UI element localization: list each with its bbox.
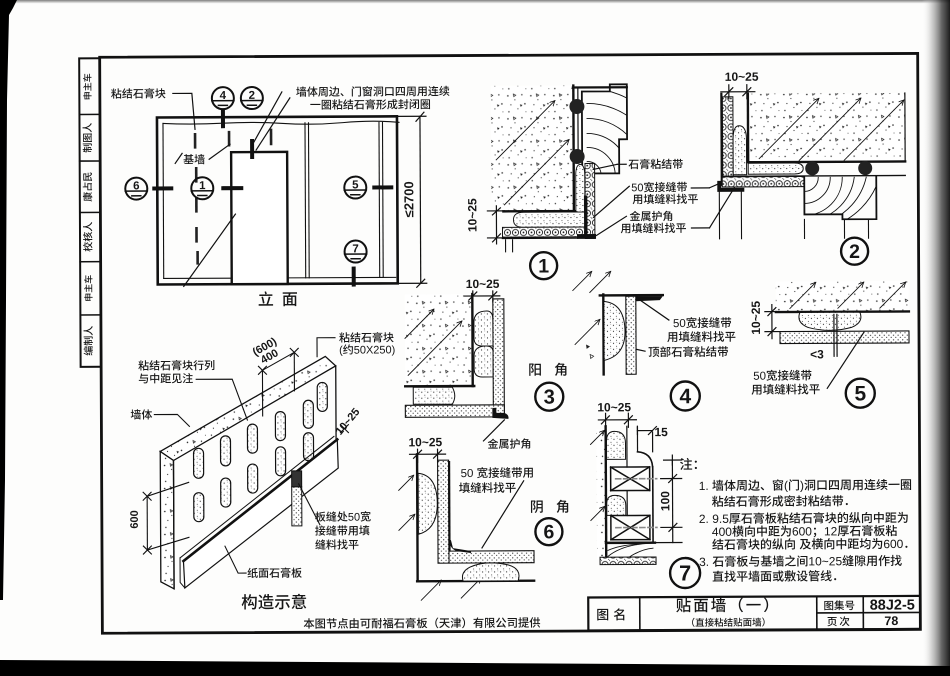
svg-text:用填缝料找平: 用填缝料找平 [667, 329, 736, 345]
svg-text:结石膏块的纵向 及横向中距均为600．: 结石膏块的纵向 及横向中距均为600． [712, 535, 915, 553]
svg-text:申主车: 申主车 [81, 73, 94, 100]
svg-text:直找平墙面或敷设管线．: 直找平墙面或敷设管线． [712, 567, 844, 585]
svg-text:78: 78 [884, 614, 898, 628]
svg-text:4: 4 [220, 90, 227, 102]
svg-text:墙体: 墙体 [130, 407, 152, 423]
svg-text:纸面石膏板: 纸面石膏板 [247, 565, 302, 581]
svg-text:1: 1 [199, 180, 206, 192]
svg-text:100: 100 [658, 491, 672, 511]
svg-text:88J2-5: 88J2-5 [870, 597, 915, 613]
svg-text:图集号: 图集号 [823, 598, 855, 613]
svg-text:基墙: 基墙 [183, 151, 205, 167]
svg-text:50 宽接缝带用: 50 宽接缝带用 [461, 465, 535, 481]
svg-text:4: 4 [679, 385, 691, 408]
svg-text:≤2700: ≤2700 [401, 181, 416, 217]
svg-text:6: 6 [133, 180, 139, 192]
svg-text:10~25: 10~25 [465, 198, 479, 232]
svg-text:金属护角: 金属护角 [487, 436, 531, 452]
svg-text:10~25: 10~25 [408, 435, 442, 449]
svg-text:粘结石膏形成密封粘结带．: 粘结石膏形成密封粘结带． [712, 492, 856, 510]
svg-text:1. 墙体周边、窗(门)洞口四周用连续一圈: 1. 墙体周边、窗(门)洞口四周用连续一圈 [699, 476, 912, 494]
svg-text:与中距见注: 与中距见注 [138, 370, 193, 386]
svg-text:(约50X250): (约50X250) [339, 341, 395, 357]
svg-text:7: 7 [352, 243, 358, 255]
svg-text:（直接粘结贴面墙）: （直接粘结贴面墙） [686, 615, 772, 629]
svg-text:石膏粘结带: 石膏粘结带 [628, 156, 683, 172]
svg-text:10~25: 10~25 [597, 400, 631, 414]
svg-text:图名: 图名 [596, 604, 630, 623]
svg-text:2: 2 [249, 90, 255, 102]
svg-text:构造示意: 构造示意 [241, 589, 307, 613]
svg-text:600: 600 [129, 510, 141, 528]
svg-text:申主车: 申主车 [82, 275, 95, 302]
svg-text:用填缝料找平: 用填缝料找平 [751, 381, 820, 397]
svg-text:用填缝料找平: 用填缝料找平 [632, 191, 698, 207]
svg-text:注：: 注： [680, 454, 706, 473]
svg-text:15: 15 [654, 425, 668, 439]
svg-text:阴角: 阴角 [530, 496, 582, 516]
svg-text:7: 7 [679, 560, 691, 585]
svg-text:康占民: 康占民 [79, 172, 94, 202]
svg-text:10~25: 10~25 [725, 70, 759, 84]
svg-text:粘结石膏块: 粘结石膏块 [111, 85, 166, 101]
svg-text:填缝料找平: 填缝料找平 [459, 480, 517, 496]
svg-text:10~25: 10~25 [466, 277, 500, 291]
svg-text:页次: 页次 [827, 614, 852, 629]
svg-text:6: 6 [543, 521, 554, 543]
svg-text:5: 5 [352, 179, 359, 191]
svg-text:2: 2 [849, 241, 860, 263]
svg-text:编制人: 编制人 [80, 326, 95, 356]
svg-text:阳角: 阳角 [528, 360, 580, 380]
svg-text:<3: <3 [810, 347, 824, 361]
svg-text:制图人: 制图人 [79, 123, 94, 153]
svg-text:3: 3 [544, 387, 555, 409]
svg-text:用填缝料找平: 用填缝料找平 [620, 220, 686, 236]
svg-text:顶部石膏粘结带: 顶部石膏粘结带 [648, 344, 729, 360]
svg-text:1: 1 [538, 255, 549, 277]
svg-text:10~25: 10~25 [749, 301, 763, 335]
svg-text:缝料找平: 缝料找平 [315, 537, 359, 553]
svg-text:贴面墙（一）: 贴面墙（一） [676, 594, 781, 616]
svg-text:本图节点由可耐福石膏板（天津）有限公司提供: 本图节点由可耐福石膏板（天津）有限公司提供 [303, 615, 540, 632]
svg-text:校核人: 校核人 [79, 222, 94, 252]
svg-text:一圈粘结石膏形成封闭圈: 一圈粘结石膏形成封闭圈 [310, 96, 431, 113]
svg-text:立面: 立面 [258, 286, 306, 310]
svg-text:5: 5 [854, 382, 866, 405]
